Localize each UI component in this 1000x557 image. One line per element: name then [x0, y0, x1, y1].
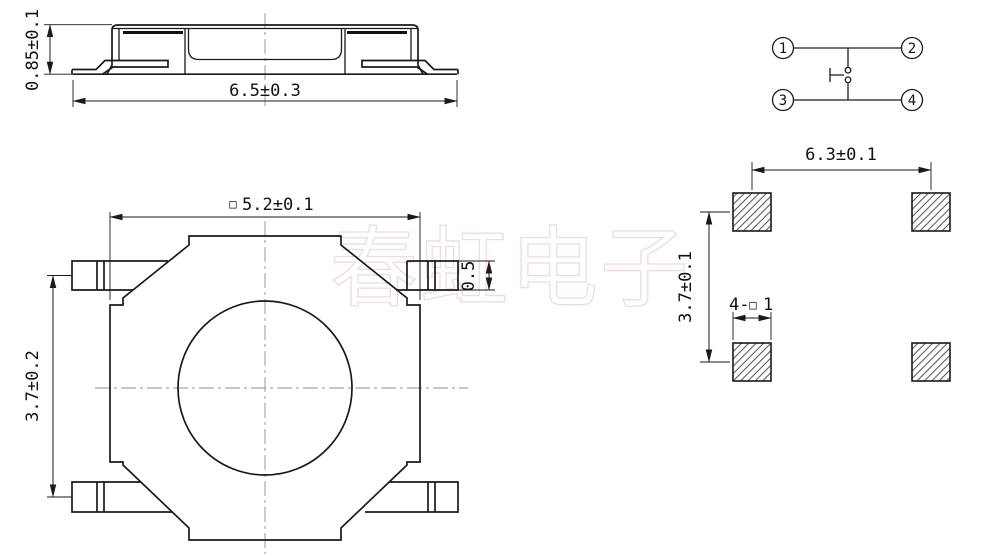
pcb-pad-bottom-left — [733, 343, 771, 381]
drawing-sheet: 春虹电子 6.5±0.3 0.85±0.1 1 2 3 — [0, 0, 1000, 557]
terminal-4-label: 4 — [908, 93, 916, 109]
pcb-pad-top-left — [733, 193, 771, 231]
pcb-pad-bottom-right — [912, 343, 950, 381]
terminal-3-label: 3 — [779, 93, 787, 109]
watermark-text: 春虹电子 — [330, 217, 690, 320]
pcb-pitch-x-extension-lines — [752, 162, 931, 190]
pcb-pad-top-right — [912, 193, 950, 231]
pcb-pitch-y-extension-lines — [700, 212, 730, 362]
circuit-contact-bottom — [845, 77, 851, 83]
circuit-diagram: 1 2 3 4 — [773, 38, 923, 111]
pcb-pad-size-extension-lines — [733, 312, 771, 340]
pcb-pad-square-symbol: □ — [749, 298, 756, 312]
pcb-land-pattern: 6.3±0.1 3.7±0.1 4- □ 1 — [676, 145, 950, 381]
side-view-left-lead — [72, 61, 168, 75]
terminal-1-label: 1 — [779, 41, 787, 57]
circuit-actuator-symbol — [830, 68, 844, 82]
technical-drawing: 春虹电子 6.5±0.3 0.85±0.1 1 2 3 — [0, 0, 1000, 557]
pcb-pitch-y-dimension-text: 3.7±0.1 — [676, 251, 696, 323]
side-height-extension-lines — [44, 25, 112, 74]
side-width-dimension-text: 6.5±0.3 — [229, 81, 301, 101]
pcb-pitch-x-dimension-text: 6.3±0.1 — [805, 145, 877, 165]
top-width-square-symbol: □ — [229, 197, 236, 211]
circuit-contact-top — [845, 67, 851, 73]
pcb-pad-size-text: 1 — [763, 295, 773, 315]
side-view: 6.5±0.3 0.85±0.1 — [23, 9, 458, 107]
pcb-pad-count-text: 4- — [729, 295, 749, 315]
top-pitch-extension-lines — [47, 276, 72, 498]
terminal-2-label: 2 — [908, 41, 916, 57]
top-view-lead-upper-left — [72, 261, 168, 290]
top-pitch-dimension-text: 3.7±0.2 — [23, 350, 43, 422]
top-view-lead-lower-right — [365, 482, 458, 512]
top-lead-width-dimension-text: 0.5 — [459, 261, 479, 292]
side-height-dimension-text: 0.85±0.1 — [23, 9, 43, 91]
top-width-dimension-text: 5.2±0.1 — [242, 195, 314, 215]
side-view-right-lead — [362, 61, 458, 75]
